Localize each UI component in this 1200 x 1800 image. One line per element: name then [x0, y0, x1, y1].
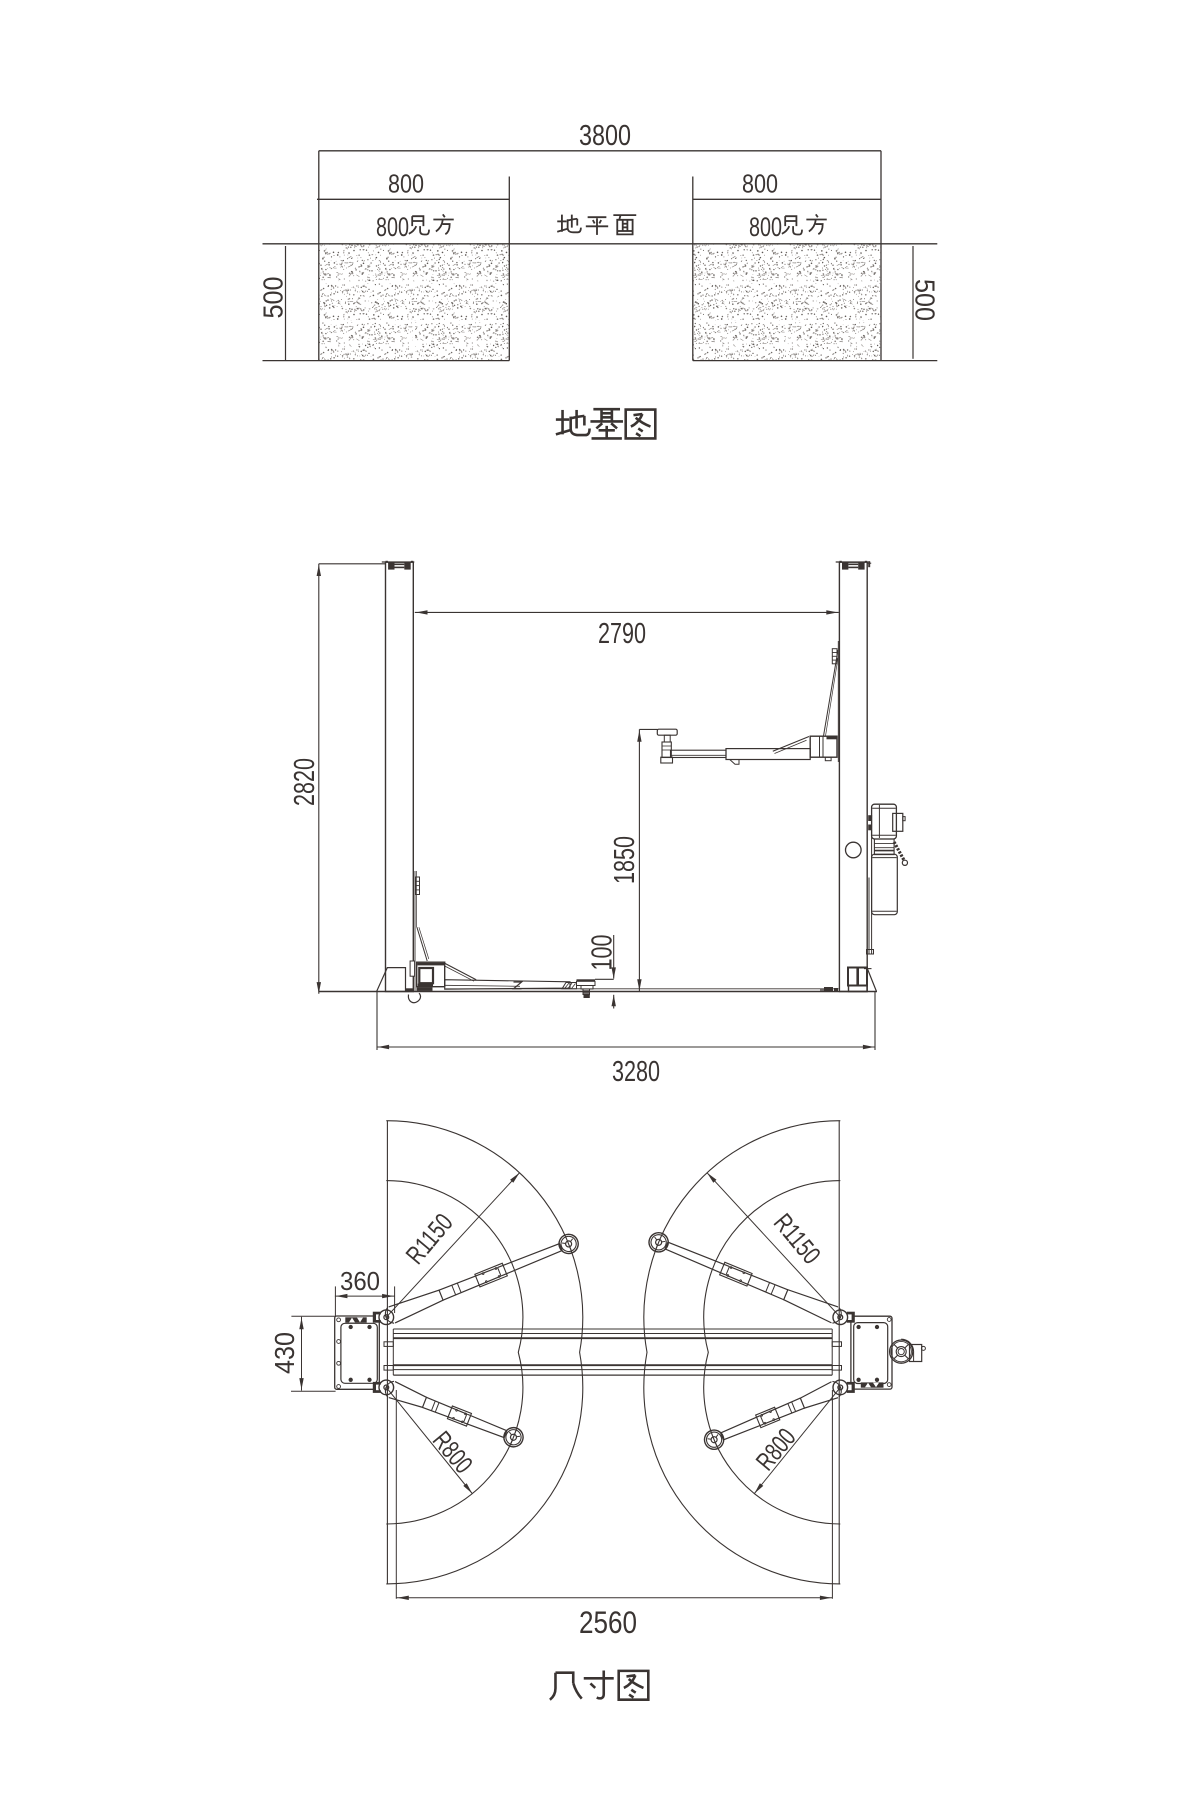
svg-text:3280: 3280 [612, 1056, 660, 1088]
svg-text:800: 800 [749, 212, 782, 242]
svg-text:800: 800 [376, 212, 409, 242]
svg-text:100: 100 [587, 935, 619, 971]
svg-text:2790: 2790 [598, 618, 646, 650]
svg-text:800: 800 [742, 169, 778, 199]
svg-text:2820: 2820 [289, 758, 321, 806]
svg-text:430: 430 [269, 1332, 300, 1374]
svg-text:2560: 2560 [579, 1604, 637, 1640]
svg-text:3800: 3800 [579, 120, 631, 152]
svg-text:500: 500 [910, 279, 941, 321]
svg-text:1850: 1850 [609, 836, 641, 884]
svg-text:800: 800 [388, 169, 424, 199]
svg-text:360: 360 [340, 1268, 380, 1296]
svg-text:500: 500 [257, 277, 288, 319]
